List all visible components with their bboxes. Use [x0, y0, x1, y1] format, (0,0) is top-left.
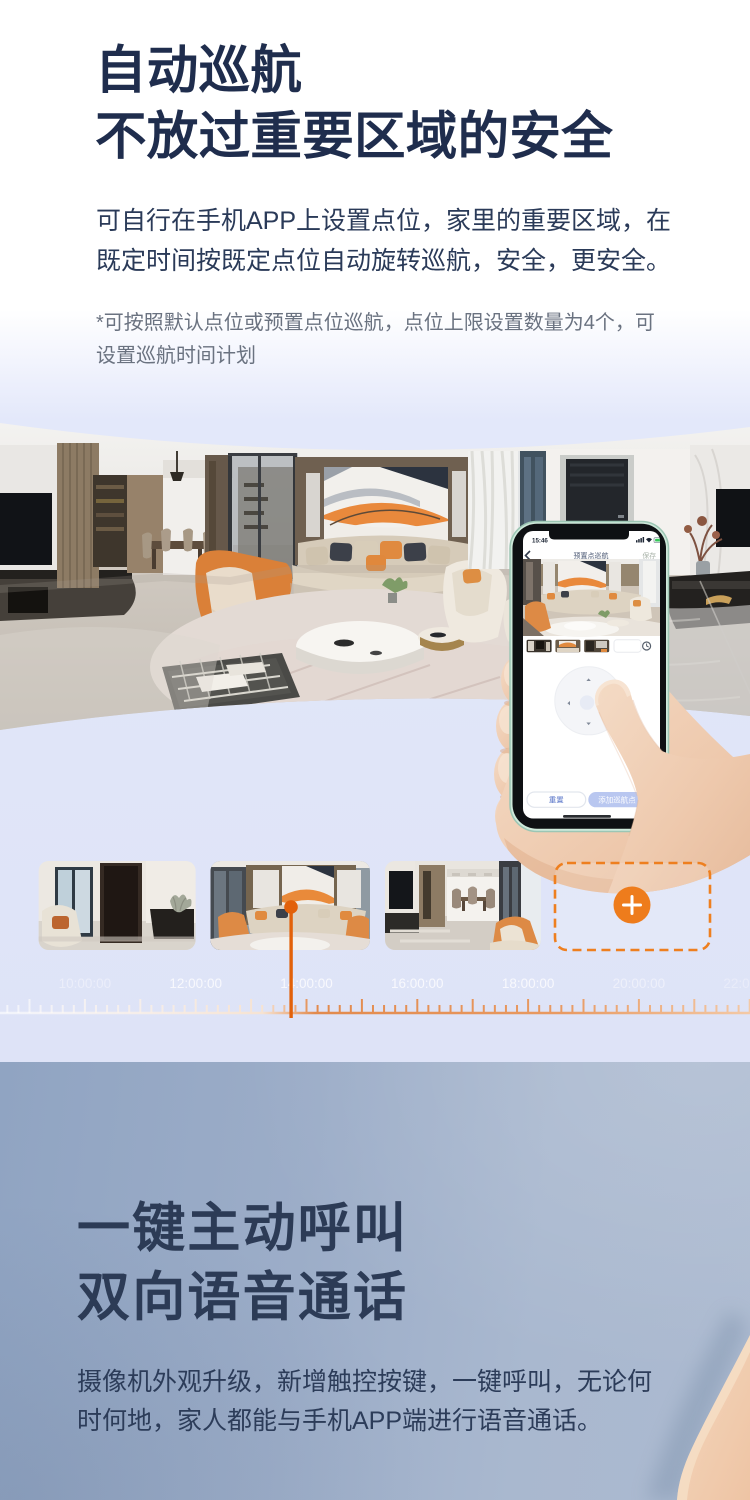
svg-text:15:46: 15:46 [532, 538, 548, 545]
svg-text:12:00:00: 12:00:00 [169, 976, 222, 991]
svg-text:重置: 重置 [549, 796, 564, 805]
svg-text:添加巡航点: 添加巡航点 [598, 795, 636, 805]
svg-text:18:00:00: 18:00:00 [502, 976, 555, 991]
svg-text:预置点巡航: 预置点巡航 [574, 551, 609, 560]
svg-text:10:00:00: 10:00:00 [59, 976, 112, 991]
svg-text:20:00:00: 20:00:00 [613, 976, 666, 991]
svg-text:保存: 保存 [642, 551, 656, 560]
svg-text:16:00:00: 16:00:00 [391, 976, 444, 991]
svg-text:22:00:00: 22:00:00 [723, 976, 750, 991]
